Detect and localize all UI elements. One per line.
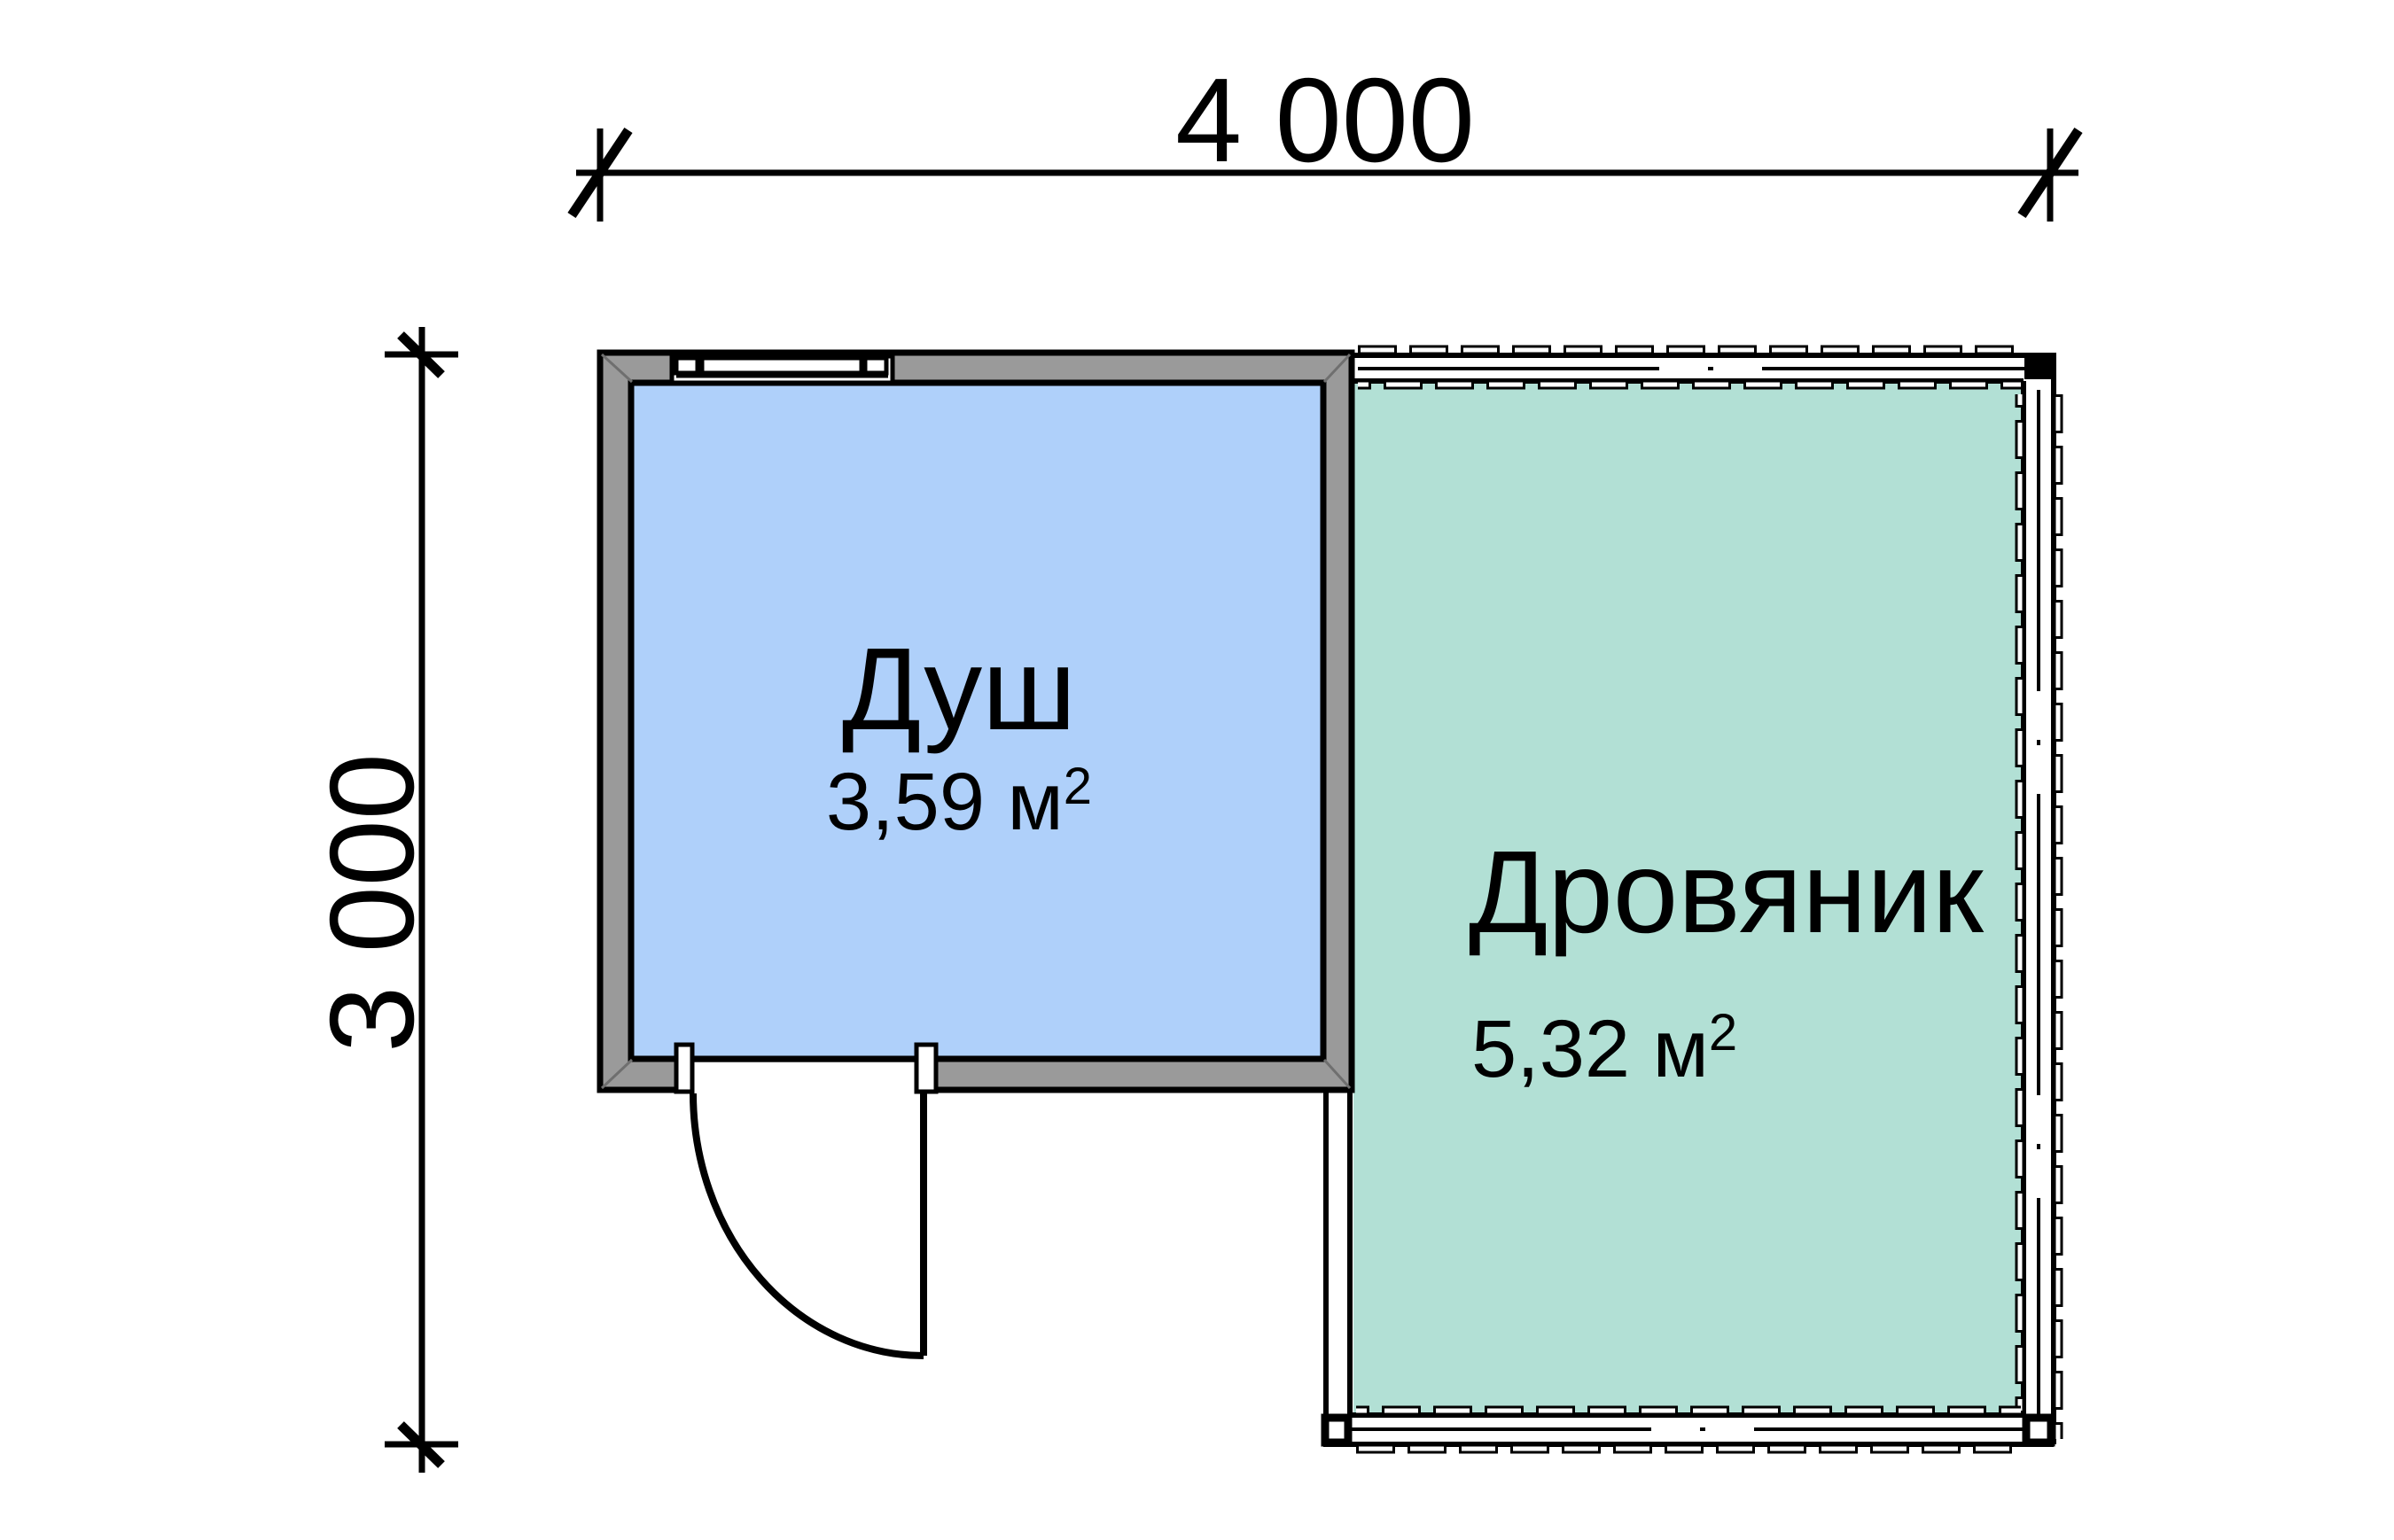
window [672,356,893,383]
window-sash [702,358,862,373]
door-opening [692,1062,916,1096]
woodshed-corner-post [2026,1418,2051,1443]
shower-room-area: 3,59 м2 [826,757,1092,847]
window-jamb [865,358,886,373]
dimension-top: 4 000 [572,53,2078,222]
shower-area-value: 3,59 м [826,757,1064,847]
floor-plan-canvas: 4 000 3 000 [0,0,2394,1540]
door [676,1045,936,1356]
woodshed-corner-post [1325,1418,1348,1443]
room-shower [600,353,1352,1356]
woodshed-room-area: 5,32 м2 [1471,1004,1737,1094]
shower-area-superscript: 2 [1064,758,1092,815]
shower-room-title: Душ [842,624,1076,754]
window-jamb [676,358,698,373]
door-jamb [916,1045,936,1092]
woodshed-corner-post [2024,356,2051,379]
dimension-width-label: 4 000 [1175,53,1475,187]
woodshed-area-superscript: 2 [1709,1004,1737,1062]
dimension-left: 3 000 [305,327,458,1473]
door-swing-arc [693,1093,924,1356]
dimension-height-label: 3 000 [305,753,439,1053]
floor-plan: 4 000 3 000 [0,0,2394,1540]
door-jamb [676,1045,692,1092]
woodshed-area-value: 5,32 м [1471,1004,1709,1094]
woodshed-room-title: Дровяник [1469,827,1985,957]
